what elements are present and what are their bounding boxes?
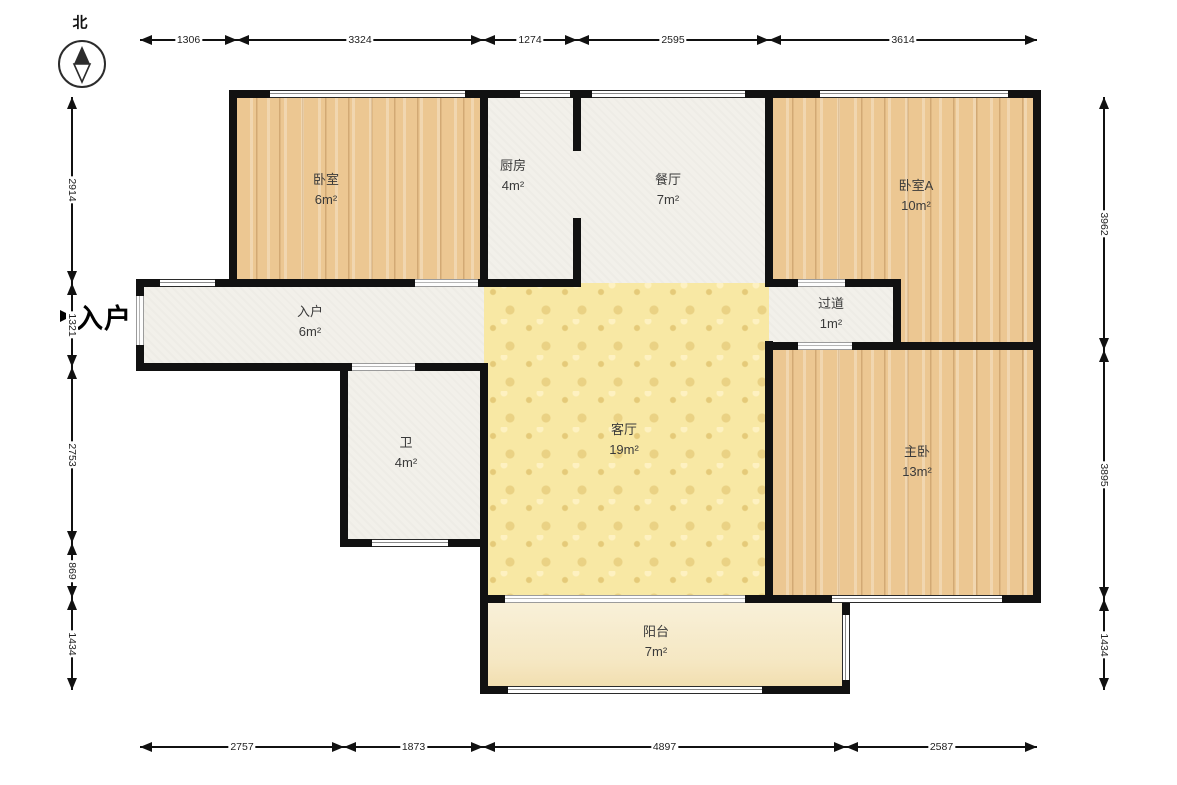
window-7 bbox=[508, 686, 762, 694]
dim-left-3-arrow-a bbox=[67, 543, 77, 555]
wall-4 bbox=[136, 363, 488, 371]
dim-bottom-2-arrow-b bbox=[834, 742, 846, 752]
dim-bottom-1-label: 1873 bbox=[400, 741, 427, 753]
room-entry-area: 6m² bbox=[297, 322, 323, 342]
wall-14 bbox=[765, 341, 773, 603]
wall-18 bbox=[1033, 90, 1041, 603]
wall-17 bbox=[893, 279, 901, 350]
door-2 bbox=[798, 342, 852, 350]
dim-top-2-arrow-b bbox=[565, 35, 577, 45]
dim-left-0-arrow-a bbox=[67, 97, 77, 109]
dim-left-4-arrow-b bbox=[67, 678, 77, 690]
wall-13 bbox=[765, 90, 773, 287]
dim-left-0-arrow-b bbox=[67, 271, 77, 283]
dim-left-3-label: 869 bbox=[66, 560, 78, 582]
dim-right-1-label: 3895 bbox=[1098, 461, 1110, 488]
wall-15 bbox=[340, 363, 348, 547]
room-kitchen-area: 4m² bbox=[500, 176, 526, 196]
dim-bottom-0-label: 2757 bbox=[228, 741, 255, 753]
dim-top-1-arrow-b bbox=[471, 35, 483, 45]
entrance-label: 入户 bbox=[76, 297, 132, 336]
room-living-label: 客厅19m² bbox=[609, 420, 639, 460]
compass-icon bbox=[58, 40, 106, 88]
dim-top-3-label: 2595 bbox=[659, 34, 686, 46]
wall-10 bbox=[480, 90, 488, 287]
dim-top-0-arrow-b bbox=[225, 35, 237, 45]
wall-9 bbox=[229, 90, 237, 287]
window-5 bbox=[372, 539, 448, 547]
dim-top-4-arrow-a bbox=[769, 35, 781, 45]
door-5 bbox=[136, 296, 144, 345]
room-entry-name: 入户 bbox=[297, 302, 323, 322]
door-4 bbox=[505, 595, 745, 603]
room-bedroom-name: 卧室 bbox=[313, 170, 339, 190]
dim-top-1-arrow-a bbox=[237, 35, 249, 45]
room-bath-area: 4m² bbox=[395, 453, 417, 473]
room-bedroomA-area: 10m² bbox=[899, 196, 934, 216]
wall-11 bbox=[573, 90, 581, 151]
room-bedroomA-name: 卧室A bbox=[899, 176, 934, 196]
room-master-label: 主卧13m² bbox=[902, 442, 932, 482]
room-kitchen-name: 厨房 bbox=[500, 156, 526, 176]
compass-north-label: 北 bbox=[72, 12, 87, 33]
room-bedroom bbox=[233, 93, 484, 283]
dim-right-2-arrow-a bbox=[1099, 599, 1109, 611]
dim-right-2-label: 1434 bbox=[1098, 631, 1110, 658]
room-master-name: 主卧 bbox=[902, 442, 932, 462]
dim-bottom-1-arrow-b bbox=[471, 742, 483, 752]
dim-bottom-3-label: 2587 bbox=[928, 741, 955, 753]
room-dining-area: 7m² bbox=[655, 190, 681, 210]
dim-bottom-0-arrow-a bbox=[140, 742, 152, 752]
wall-12 bbox=[573, 218, 581, 287]
room-bedroom-label: 卧室6m² bbox=[313, 170, 339, 210]
dim-right-1-arrow-a bbox=[1099, 350, 1109, 362]
floor-plan-canvas: 北 入户 卧室6m²厨房4m²餐厅7m²卧室A10m²过道1m²入户6m²卫4m… bbox=[0, 0, 1177, 785]
room-bedroomA-label: 卧室A10m² bbox=[899, 176, 934, 216]
dim-left-2-label: 2753 bbox=[66, 441, 78, 468]
wall-16 bbox=[480, 363, 488, 694]
room-living-area: 19m² bbox=[609, 440, 639, 460]
dim-left-4-label: 1434 bbox=[66, 630, 78, 657]
compass-needle-icon bbox=[60, 42, 104, 86]
door-0 bbox=[415, 279, 478, 287]
dim-top-0-arrow-a bbox=[140, 35, 152, 45]
dim-bottom-2-arrow-a bbox=[483, 742, 495, 752]
dim-right-0-arrow-b bbox=[1099, 338, 1109, 350]
dim-top-4-label: 3614 bbox=[889, 34, 916, 46]
dim-top-3-arrow-a bbox=[577, 35, 589, 45]
window-8 bbox=[842, 615, 850, 680]
room-balcony-label: 阳台7m² bbox=[643, 622, 669, 662]
dim-left-0-label: 2914 bbox=[66, 176, 78, 203]
room-hallway-name: 过道 bbox=[818, 294, 844, 314]
room-balcony-name: 阳台 bbox=[643, 622, 669, 642]
dim-right-2-arrow-b bbox=[1099, 678, 1109, 690]
window-0 bbox=[270, 90, 465, 98]
dim-bottom-3-arrow-b bbox=[1025, 742, 1037, 752]
dim-left-1-label: 1321 bbox=[66, 311, 78, 338]
dim-right-1-arrow-b bbox=[1099, 587, 1109, 599]
room-dining-name: 餐厅 bbox=[655, 170, 681, 190]
dim-top-2-arrow-a bbox=[483, 35, 495, 45]
dim-top-4-arrow-b bbox=[1025, 35, 1037, 45]
dim-bottom-0-arrow-b bbox=[332, 742, 344, 752]
dim-bottom-3-arrow-a bbox=[846, 742, 858, 752]
dim-top-1-label: 3324 bbox=[346, 34, 373, 46]
window-6 bbox=[832, 595, 1002, 603]
dim-left-2-arrow-b bbox=[67, 531, 77, 543]
dim-left-1-arrow-b bbox=[67, 355, 77, 367]
room-kitchen-label: 厨房4m² bbox=[500, 156, 526, 196]
dim-top-2-label: 1274 bbox=[516, 34, 543, 46]
window-3 bbox=[820, 90, 1008, 98]
dim-right-0-label: 3962 bbox=[1098, 210, 1110, 237]
window-4 bbox=[160, 279, 215, 287]
room-hallway-area: 1m² bbox=[818, 314, 844, 334]
room-master-area: 13m² bbox=[902, 462, 932, 482]
dim-left-1-arrow-a bbox=[67, 283, 77, 295]
dim-left-3-arrow-b bbox=[67, 586, 77, 598]
room-dining-label: 餐厅7m² bbox=[655, 170, 681, 210]
window-1 bbox=[520, 90, 570, 98]
door-1 bbox=[798, 279, 845, 287]
room-kitchen bbox=[484, 93, 577, 283]
room-living-name: 客厅 bbox=[609, 420, 639, 440]
window-2 bbox=[592, 90, 745, 98]
dim-bottom-1-arrow-a bbox=[344, 742, 356, 752]
room-bath-label: 卫4m² bbox=[395, 433, 417, 473]
room-bath-name: 卫 bbox=[395, 433, 417, 453]
dim-left-2-arrow-a bbox=[67, 367, 77, 379]
room-hallway-label: 过道1m² bbox=[818, 294, 844, 334]
dim-top-0-label: 1306 bbox=[175, 34, 202, 46]
dim-right-0-arrow-a bbox=[1099, 97, 1109, 109]
room-entry-label: 入户6m² bbox=[297, 302, 323, 342]
dim-bottom-2-label: 4897 bbox=[651, 741, 678, 753]
dim-left-4-arrow-a bbox=[67, 598, 77, 610]
door-3 bbox=[352, 363, 415, 371]
dim-top-3-arrow-b bbox=[757, 35, 769, 45]
room-balcony-area: 7m² bbox=[643, 642, 669, 662]
room-bedroom-area: 6m² bbox=[313, 190, 339, 210]
